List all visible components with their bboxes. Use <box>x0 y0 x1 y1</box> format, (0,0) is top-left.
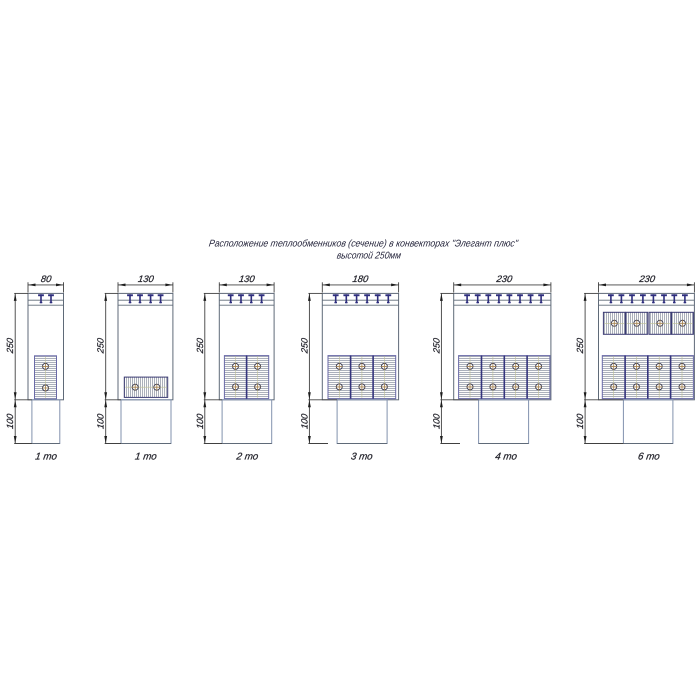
svg-text:250: 250 <box>5 337 15 354</box>
svg-text:250: 250 <box>299 337 309 354</box>
svg-text:100: 100 <box>431 413 441 429</box>
svg-text:250: 250 <box>575 337 585 354</box>
svg-text:высотой 250мм: высотой 250мм <box>336 251 402 262</box>
svg-text:100: 100 <box>575 413 585 429</box>
svg-text:100: 100 <box>299 413 309 429</box>
svg-text:4 то: 4 то <box>494 451 518 462</box>
svg-text:250: 250 <box>431 337 441 354</box>
svg-text:250: 250 <box>195 337 205 354</box>
svg-text:100: 100 <box>195 413 205 429</box>
svg-text:6 то: 6 то <box>637 451 661 462</box>
svg-text:230: 230 <box>638 274 657 285</box>
svg-text:250: 250 <box>96 337 106 354</box>
svg-text:100: 100 <box>96 413 106 429</box>
svg-text:100: 100 <box>5 413 15 429</box>
svg-text:2 то: 2 то <box>235 451 260 462</box>
svg-text:130: 130 <box>238 274 256 285</box>
svg-text:130: 130 <box>137 274 155 285</box>
svg-text:1 то: 1 то <box>134 451 158 462</box>
svg-text:180: 180 <box>352 274 370 285</box>
svg-text:Расположение теплообменников (: Расположение теплообменников (сечение) в… <box>208 239 519 250</box>
svg-text:3 то: 3 то <box>350 451 374 462</box>
svg-text:1 то: 1 то <box>34 451 58 462</box>
svg-text:230: 230 <box>495 274 514 285</box>
